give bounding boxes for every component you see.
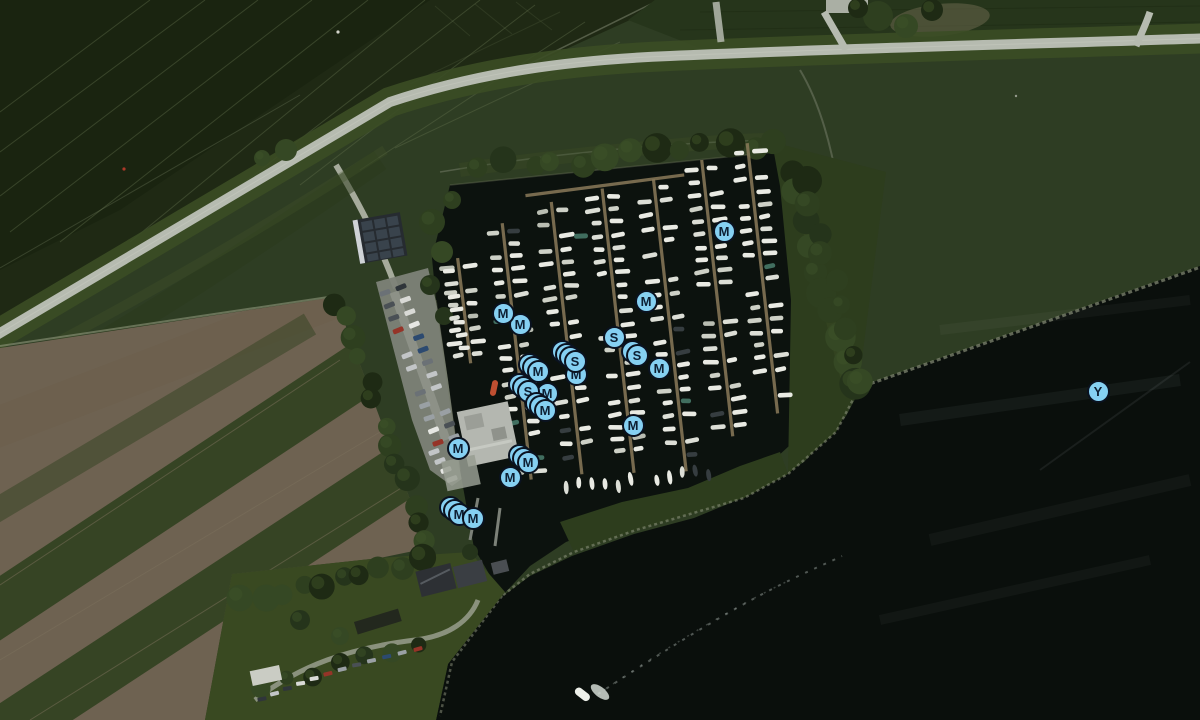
map-marker-m[interactable]: M <box>499 466 522 489</box>
map-marker-s[interactable]: S <box>564 350 587 373</box>
map-marker-s[interactable]: S <box>517 380 540 403</box>
map-marker-m[interactable]: M <box>527 360 550 383</box>
map-marker-m[interactable]: M <box>492 302 515 325</box>
marker-overlay: MMMMSSMMSMMSMMMMMMMY <box>0 0 1200 720</box>
map-marker-y[interactable]: Y <box>1087 380 1110 403</box>
map-marker-m[interactable]: M <box>648 357 671 380</box>
map-marker-m[interactable]: M <box>462 507 485 530</box>
map-marker-m[interactable]: M <box>534 399 557 422</box>
map-marker-m[interactable]: M <box>713 220 736 243</box>
map-marker-s[interactable]: S <box>626 344 649 367</box>
map-marker-m[interactable]: M <box>622 414 645 437</box>
map-viewport[interactable]: MMMMSSMMSMMSMMMMMMMY <box>0 0 1200 720</box>
map-marker-s[interactable]: S <box>603 326 626 349</box>
map-marker-m[interactable]: M <box>635 290 658 313</box>
map-marker-m[interactable]: M <box>447 437 470 460</box>
